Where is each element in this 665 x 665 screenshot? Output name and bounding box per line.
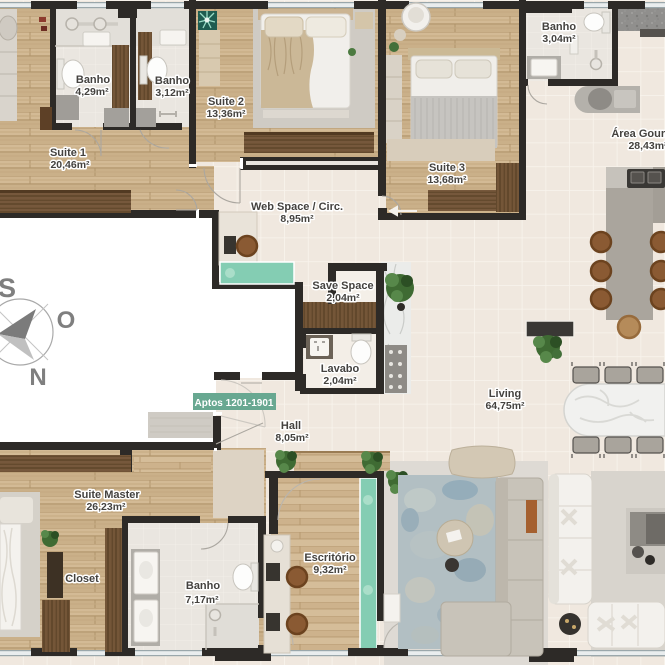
- svg-text:Banho: Banho: [542, 21, 577, 33]
- svg-text:Escritório: Escritório: [304, 552, 356, 564]
- svg-text:20,46m²: 20,46m²: [50, 159, 90, 171]
- svg-text:Closet: Closet: [65, 573, 99, 585]
- svg-text:Banho: Banho: [76, 74, 111, 86]
- svg-text:S: S: [0, 273, 16, 303]
- svg-text:64,75m²: 64,75m²: [485, 400, 525, 412]
- svg-text:Web Space / Circ.: Web Space / Circ.: [251, 201, 343, 213]
- svg-text:Suite 1: Suite 1: [50, 147, 86, 159]
- svg-text:8,05m²: 8,05m²: [275, 432, 309, 444]
- svg-text:28,43m²: 28,43m²: [628, 140, 665, 152]
- svg-text:Banho: Banho: [186, 580, 221, 592]
- svg-text:8,95m²: 8,95m²: [280, 213, 314, 225]
- svg-text:O: O: [57, 307, 76, 334]
- svg-text:Hall: Hall: [281, 420, 301, 432]
- svg-text:13,68m²: 13,68m²: [427, 174, 467, 186]
- svg-text:13,36m²: 13,36m²: [206, 108, 246, 120]
- svg-text:Suite 2: Suite 2: [208, 96, 244, 108]
- svg-text:Suite 3: Suite 3: [429, 162, 465, 174]
- svg-text:2,04m²: 2,04m²: [323, 375, 357, 387]
- svg-text:3,12m²: 3,12m²: [155, 87, 189, 99]
- svg-text:Living: Living: [489, 388, 521, 400]
- svg-text:Banho: Banho: [155, 75, 190, 87]
- svg-text:Save Space: Save Space: [312, 280, 373, 292]
- svg-text:Aptos 1201-1901: Aptos 1201-1901: [195, 398, 274, 409]
- svg-text:26,23m²: 26,23m²: [86, 501, 126, 513]
- svg-text:Lavabo: Lavabo: [321, 363, 360, 375]
- svg-text:9,32m²: 9,32m²: [313, 564, 347, 576]
- svg-text:N: N: [29, 364, 46, 391]
- svg-text:2,04m²: 2,04m²: [326, 292, 360, 304]
- svg-text:Suite Master: Suite Master: [74, 489, 140, 501]
- svg-text:3,04m²: 3,04m²: [542, 33, 576, 45]
- svg-text:Área Gourmet: Área Gourmet: [611, 127, 665, 140]
- svg-text:7,17m²: 7,17m²: [185, 594, 219, 606]
- svg-text:4,29m²: 4,29m²: [75, 86, 109, 98]
